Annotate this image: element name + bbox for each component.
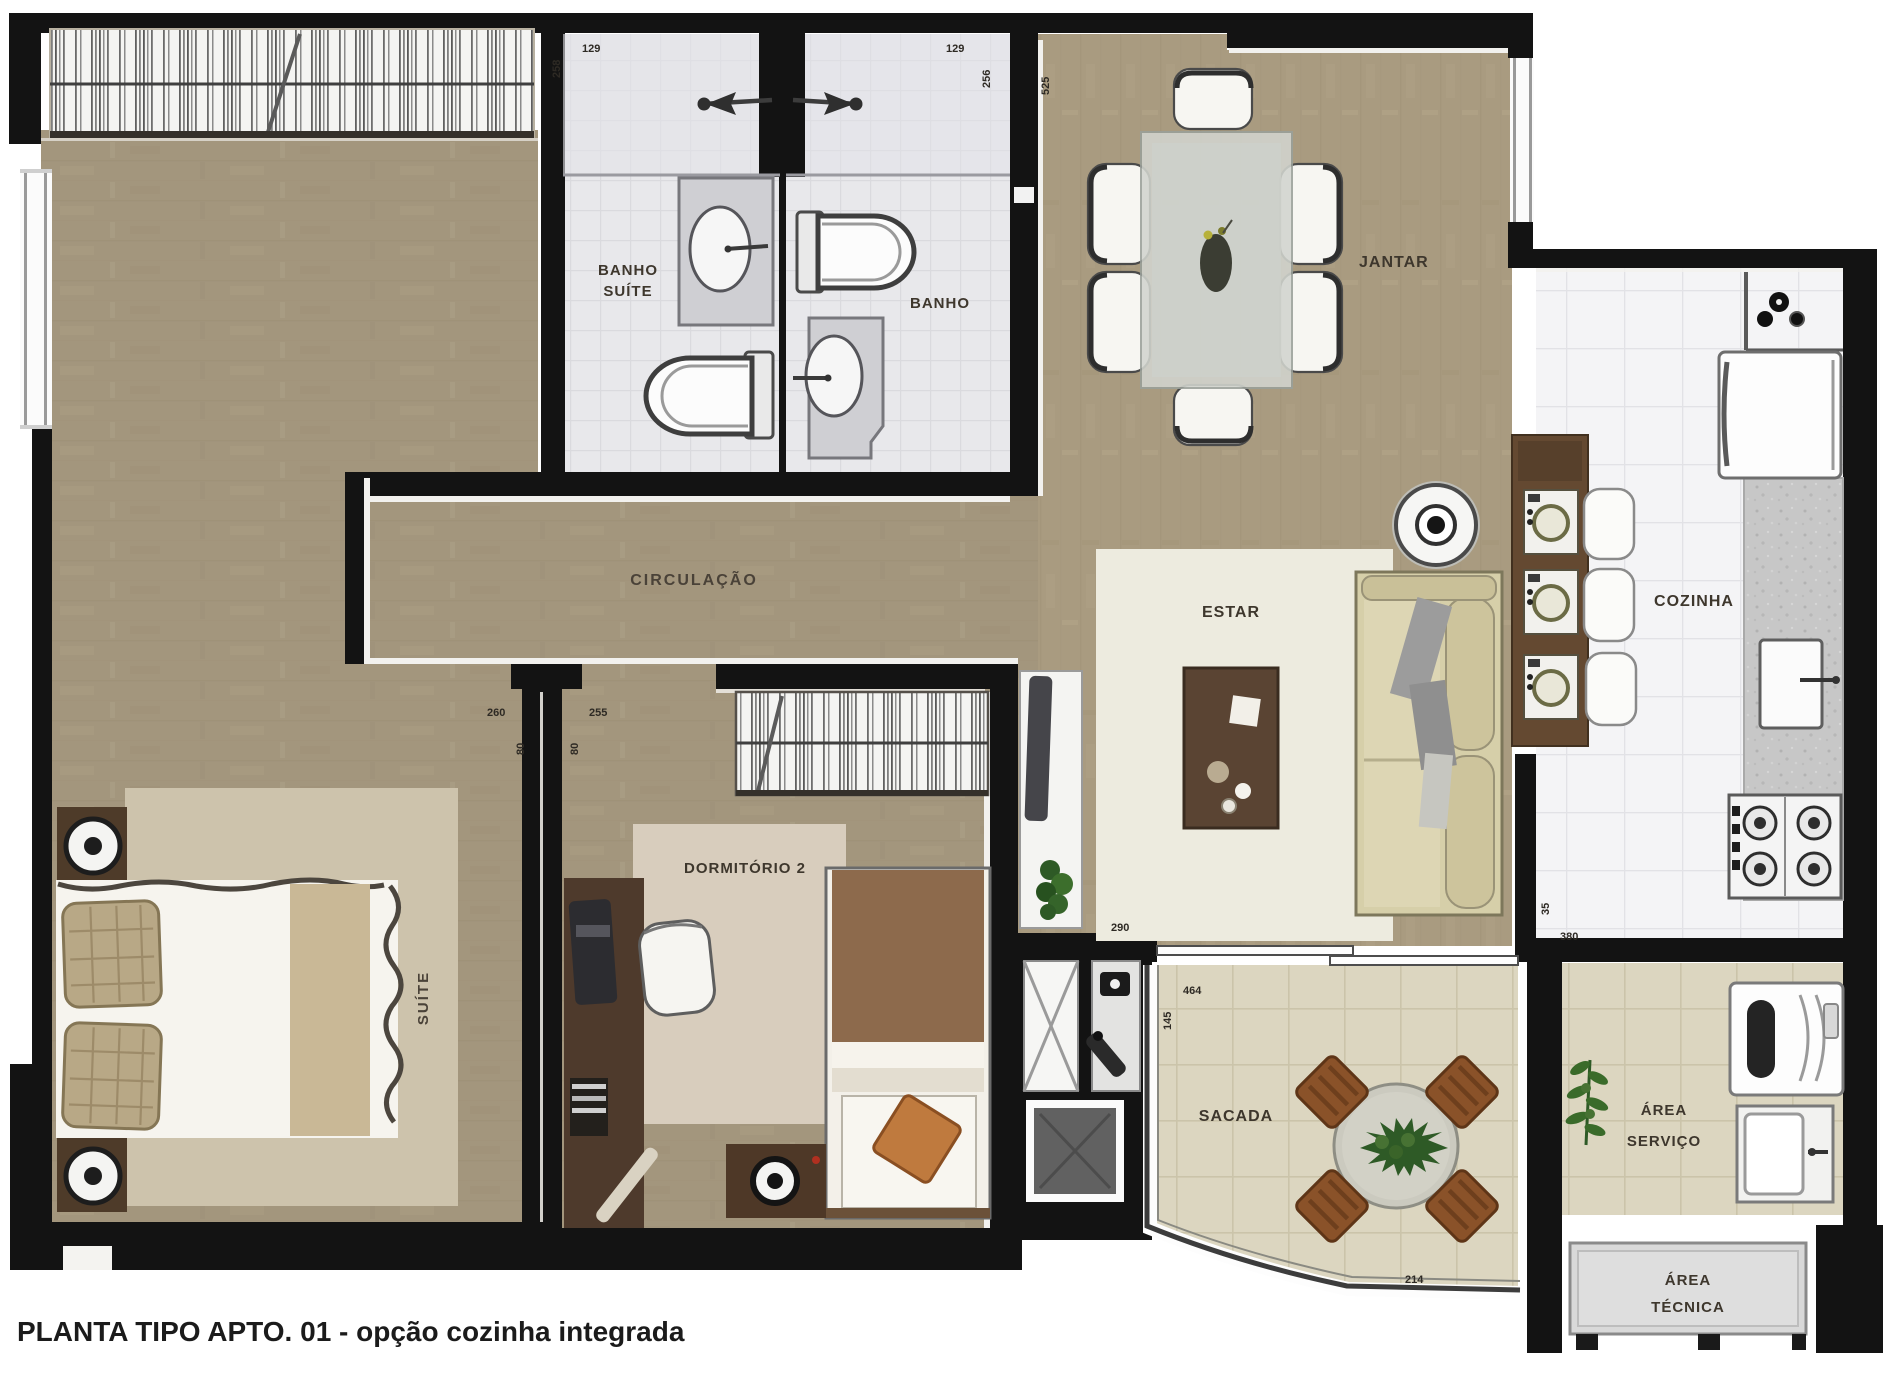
svg-text:BANHO: BANHO (598, 262, 658, 279)
svg-text:258: 258 (551, 60, 563, 78)
svg-text:TÉCNICA: TÉCNICA (1651, 1299, 1725, 1316)
svg-text:JANTAR: JANTAR (1359, 254, 1429, 271)
svg-text:ESTAR: ESTAR (1202, 604, 1260, 621)
svg-text:290: 290 (1111, 922, 1129, 934)
svg-text:129: 129 (946, 43, 964, 55)
svg-text:ÁREA: ÁREA (1665, 1272, 1712, 1289)
svg-text:ÁREA: ÁREA (1641, 1102, 1688, 1119)
svg-text:80: 80 (569, 743, 581, 755)
svg-text:SUÍTE: SUÍTE (603, 283, 652, 300)
svg-text:COZINHA: COZINHA (1654, 593, 1734, 610)
svg-text:SUÍTE: SUÍTE (415, 971, 432, 1025)
svg-text:256: 256 (981, 70, 993, 88)
svg-text:464: 464 (1183, 985, 1202, 997)
svg-text:380: 380 (1560, 931, 1578, 943)
svg-text:DORMITÓRIO 2: DORMITÓRIO 2 (684, 859, 806, 877)
svg-text:260: 260 (487, 707, 505, 719)
svg-text:80: 80 (515, 743, 527, 755)
svg-text:SERVIÇO: SERVIÇO (1627, 1133, 1701, 1150)
svg-text:35: 35 (1540, 903, 1552, 915)
svg-text:CIRCULAÇÃO: CIRCULAÇÃO (630, 569, 758, 589)
svg-text:525: 525 (1040, 77, 1052, 95)
svg-text:214: 214 (1405, 1274, 1424, 1286)
svg-text:SACADA: SACADA (1199, 1108, 1273, 1125)
svg-text:BANHO: BANHO (910, 295, 970, 312)
svg-text:129: 129 (582, 43, 600, 55)
svg-text:145: 145 (1162, 1012, 1174, 1030)
svg-text:PLANTA TIPO APTO. 01 - opção: PLANTA TIPO APTO. 01 - opção cozinha int… (17, 1316, 685, 1347)
svg-text:255: 255 (589, 707, 607, 719)
